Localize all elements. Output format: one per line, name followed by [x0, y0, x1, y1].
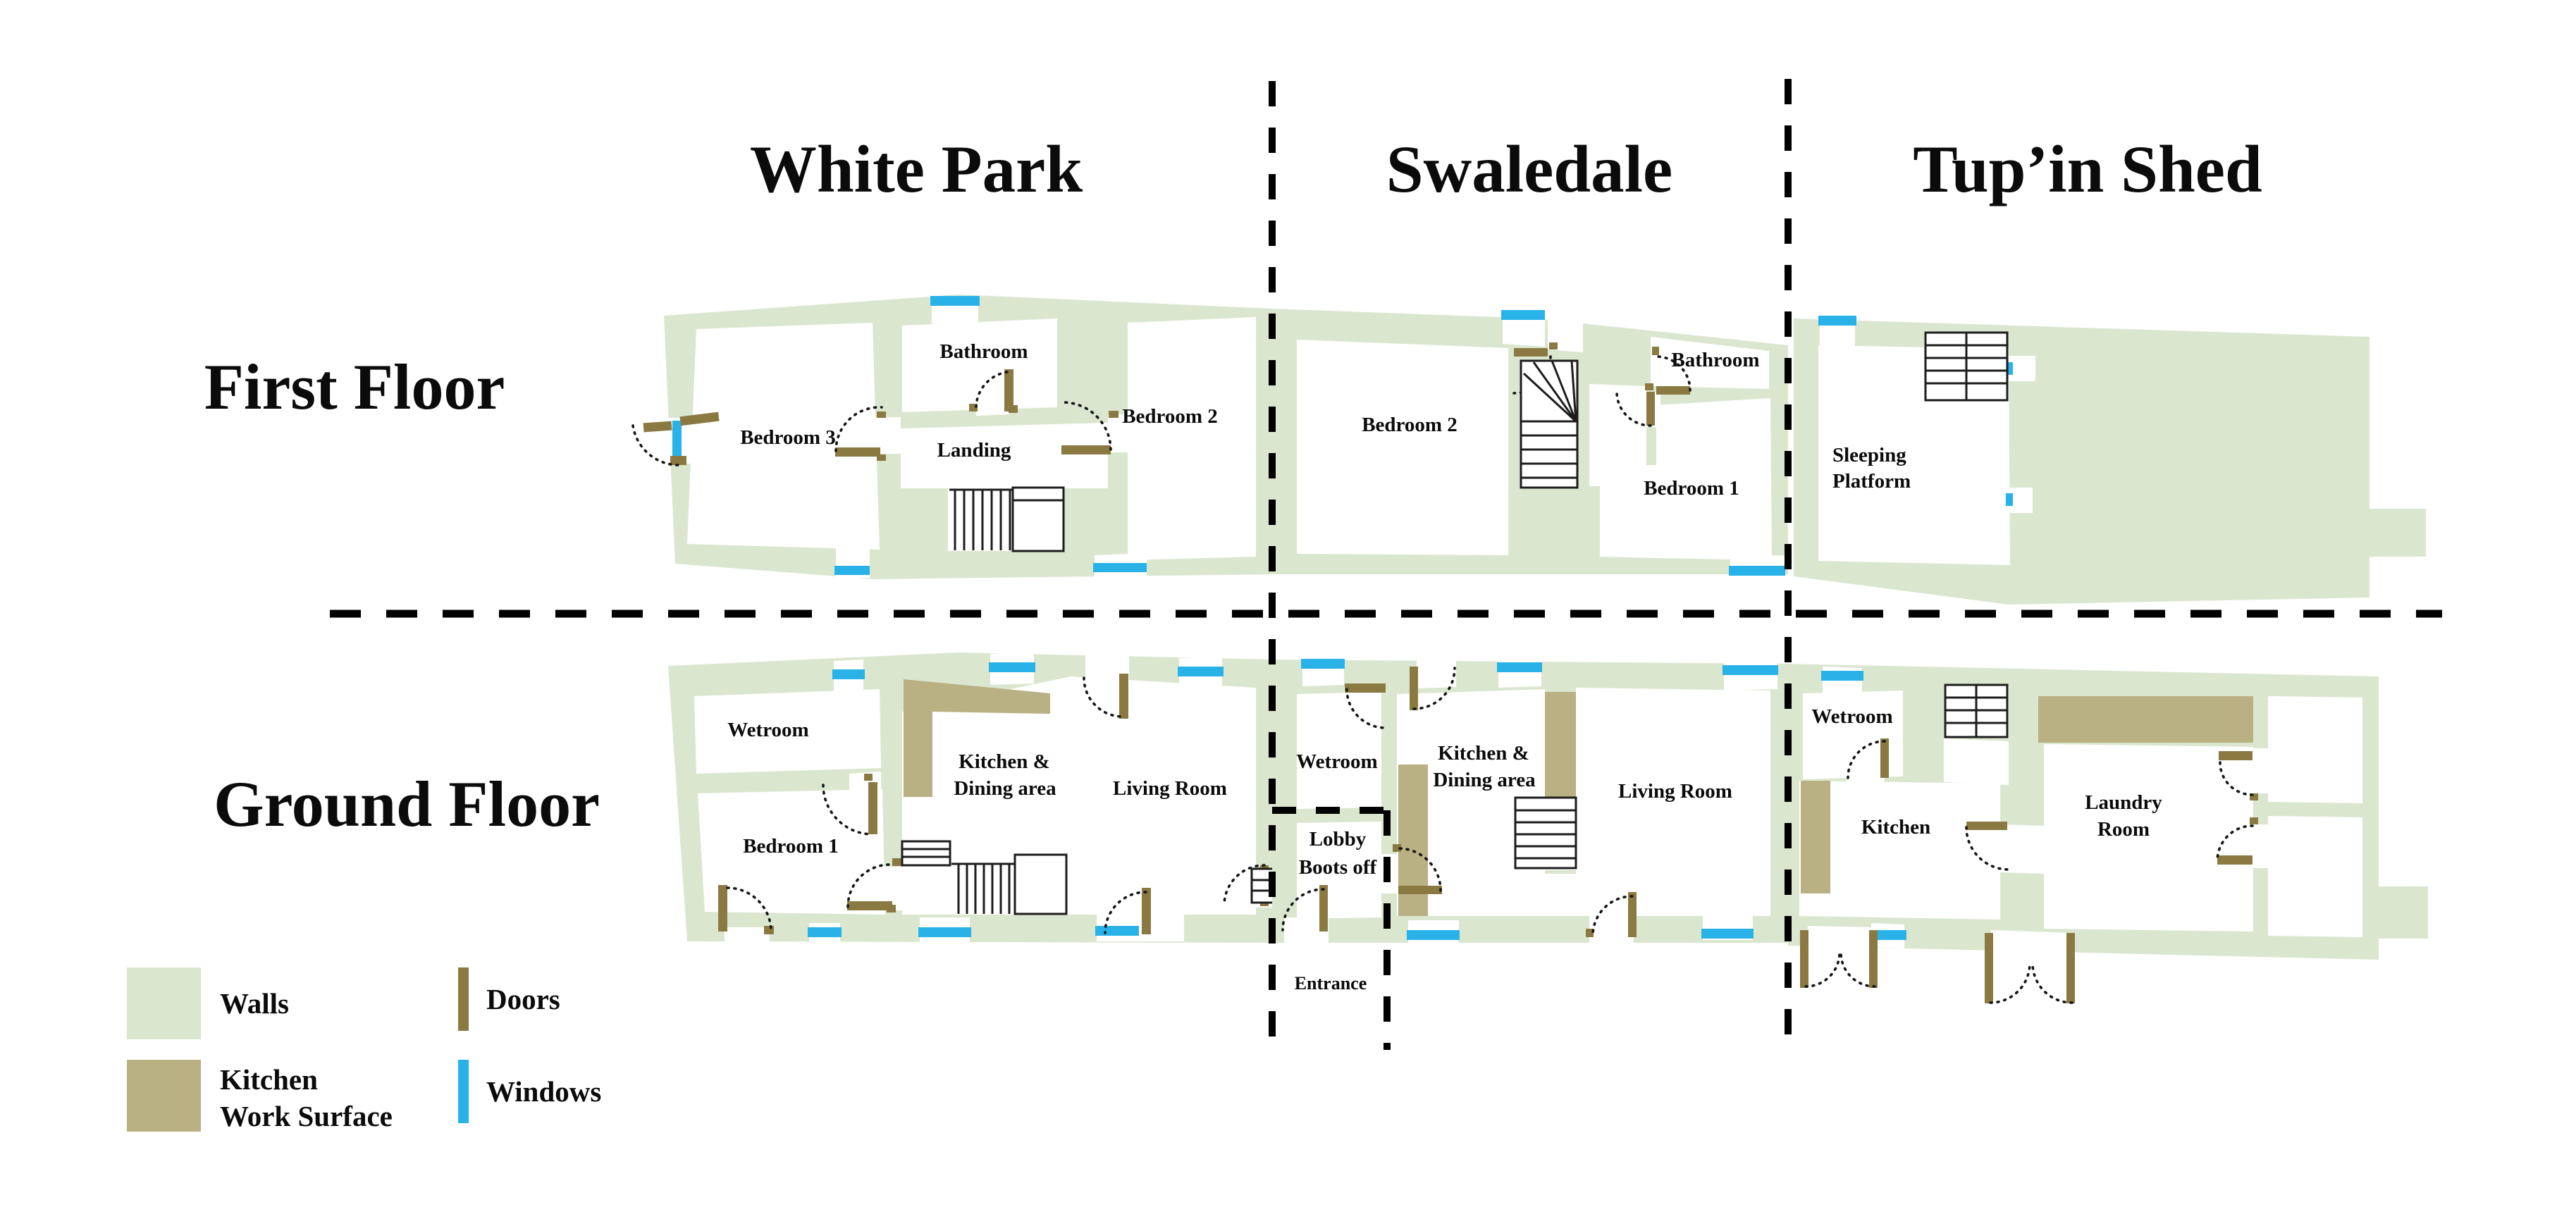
- label-wp-landing: Landing: [937, 439, 1011, 462]
- kitchen-work-surface: [1801, 781, 1830, 893]
- window: [1497, 662, 1542, 672]
- window: [1501, 310, 1545, 320]
- label-ts-laundry-2: Room: [2097, 818, 2150, 841]
- door-opening: [1589, 916, 1634, 943]
- label-sw-bedroom2: Bedroom 2: [1362, 414, 1458, 436]
- label-ts-laundry-1: Laundry: [2085, 791, 2162, 814]
- window: [1729, 566, 1785, 576]
- label-first-floor: First Floor: [204, 351, 505, 423]
- room-store-top: [2268, 696, 2362, 803]
- window: [832, 669, 865, 679]
- label-ts-sleeping-2: Platform: [1832, 470, 1911, 493]
- label-sw-kitchen-2: Dining area: [1433, 769, 1536, 791]
- kitchen-work-surface: [1545, 692, 1576, 800]
- window: [1723, 665, 1778, 675]
- door-opening: [1847, 774, 1885, 796]
- window: [1178, 667, 1224, 676]
- legend-walls-label: Walls: [220, 987, 289, 1020]
- door-opening: [2000, 824, 2044, 874]
- window: [989, 662, 1035, 672]
- room-passage: [1545, 874, 1576, 916]
- window: [930, 296, 980, 306]
- room-bedroom2: [1297, 340, 1508, 555]
- label-wp-bedroom1: Bedroom 1: [743, 835, 839, 858]
- white-park-first-floor: [633, 295, 1272, 579]
- label-sw-lobby-1: Lobby: [1309, 828, 1367, 850]
- window: [918, 927, 971, 937]
- label-sw-wetroom: Wetroom: [1296, 750, 1377, 773]
- label-wp-bathroom: Bathroom: [939, 340, 1028, 363]
- window: [672, 421, 682, 459]
- room-passage: [1944, 738, 2009, 785]
- label-wp-bedroom3: Bedroom 3: [740, 426, 836, 449]
- legend-windows-swatch: [458, 1060, 469, 1123]
- legend-kitchen-label-2: Work Surface: [220, 1100, 393, 1132]
- window: [1407, 930, 1460, 940]
- label-ground-floor: Ground Floor: [214, 768, 600, 840]
- title-swaledale: Swaledale: [1386, 132, 1672, 206]
- legend-kitchen-swatch: [127, 1060, 201, 1132]
- label-ts-wetroom: Wetroom: [1811, 705, 1892, 728]
- window: [834, 566, 870, 575]
- wall-bump: [2375, 886, 2428, 939]
- door-opening: [1417, 654, 1456, 688]
- label-wp-wetroom: Wetroom: [727, 719, 808, 741]
- room-bedroom2: [1128, 317, 1256, 560]
- window: [1701, 929, 1754, 939]
- window: [1821, 671, 1863, 681]
- window: [2006, 493, 2013, 506]
- label-ts-sleeping-1: Sleeping: [1832, 444, 1906, 466]
- label-wp-bedroom2: Bedroom 2: [1122, 405, 1218, 428]
- label-wp-kitchen-2: Dining area: [954, 777, 1056, 800]
- floorplan-page: Bedroom 3 Bathroom Landing Bedroom 2 Bed…: [0, 0, 2576, 1219]
- label-sw-bedroom1: Bedroom 1: [1644, 477, 1739, 500]
- stairs: [1515, 798, 1576, 868]
- stairs-ladder: [1925, 333, 2007, 400]
- window: [1093, 563, 1147, 572]
- label-ts-kitchen: Kitchen: [1861, 816, 1930, 839]
- label-wp-kitchen-1: Kitchen &: [959, 750, 1050, 773]
- door-opening: [1991, 930, 2072, 955]
- wall-bump: [2368, 509, 2426, 557]
- first-floor-plan: Bedroom 3 Bathroom Landing Bedroom 2 Bed…: [633, 295, 2426, 605]
- window: [1818, 316, 1856, 326]
- window: [1301, 659, 1345, 669]
- label-wp-living: Living Room: [1113, 777, 1227, 800]
- room-bathroom: [902, 318, 1057, 412]
- label-sw-entrance: Entrance: [1295, 973, 1367, 994]
- stairs-winder: [1521, 361, 1577, 488]
- stairs: [1945, 685, 2007, 737]
- window: [1095, 926, 1139, 936]
- legend-doors-label: Doors: [486, 983, 560, 1015]
- legend: Walls Kitchen Work Surface Doors Windows: [127, 967, 601, 1132]
- legend-kitchen-label-1: Kitchen: [220, 1063, 318, 1096]
- door-opening: [2252, 748, 2268, 793]
- door-opening: [1808, 926, 1873, 950]
- label-sw-living: Living Room: [1618, 780, 1732, 803]
- title-tupin-shed: Tup’in Shed: [1913, 132, 2262, 206]
- label-sw-lobby-2: Boots off: [1299, 856, 1377, 879]
- legend-doors-swatch: [458, 967, 469, 1031]
- label-sw-kitchen-1: Kitchen &: [1438, 742, 1529, 765]
- window-opening: [1302, 654, 1344, 686]
- legend-walls-swatch: [127, 967, 201, 1039]
- door-opening: [725, 927, 770, 944]
- floorplan-canvas: Bedroom 3 Bathroom Landing Bedroom 2 Bed…: [0, 0, 2576, 1219]
- legend-windows-label: Windows: [486, 1075, 601, 1108]
- title-white-park: White Park: [750, 132, 1083, 206]
- room-store-bottom: [2268, 816, 2362, 937]
- window: [808, 927, 842, 937]
- door-opening: [2252, 824, 2268, 868]
- ground-floor-plan: Wetroom Bedroom 1 Kitchen & Dining area …: [668, 652, 2428, 1003]
- kitchen-work-surface: [2038, 696, 2253, 743]
- door-opening: [976, 402, 1009, 416]
- label-sw-bathroom: Bathroom: [1671, 349, 1759, 371]
